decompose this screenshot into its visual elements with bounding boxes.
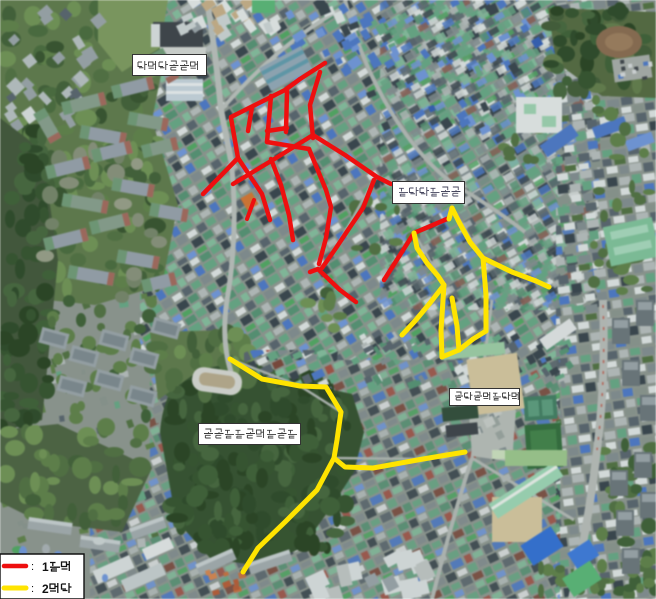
svg-text::: :: [31, 561, 34, 573]
svg-text::: :: [31, 583, 34, 595]
svg-text:2: 2: [42, 582, 49, 596]
svg-text:1: 1: [42, 560, 49, 574]
